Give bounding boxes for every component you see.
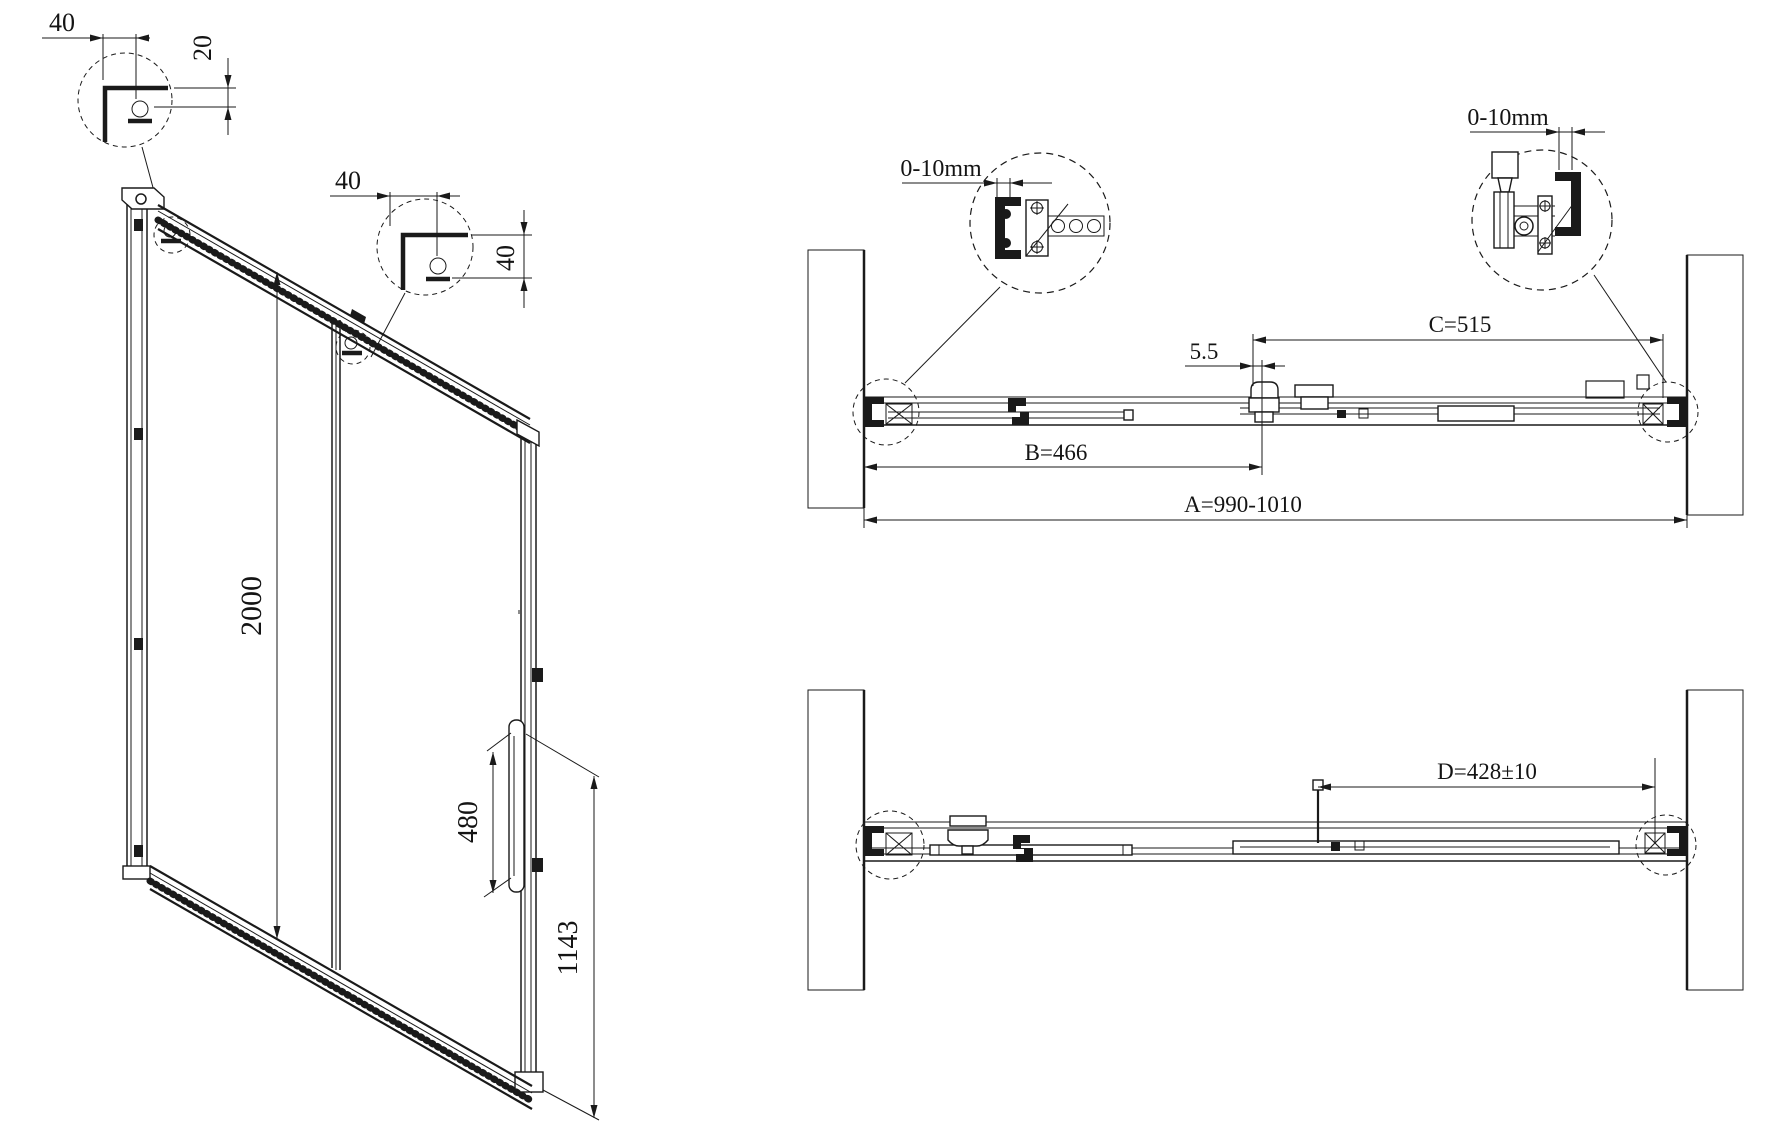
plan-view-top: 0-10mm	[808, 105, 1743, 528]
wall-profile-icon	[995, 197, 1021, 259]
dim-text-gap-left: 0-10mm	[900, 156, 982, 182]
dim-text-1143: 1143	[553, 921, 584, 976]
bottom-rail	[150, 866, 532, 1109]
top-rail	[158, 205, 530, 443]
roller-carriage-top	[1249, 382, 1279, 422]
dim-detail1-height: 20	[154, 35, 236, 135]
guide-hook-icon	[1013, 835, 1033, 862]
dim-detail2-width: 40	[330, 166, 460, 256]
dim-travel: D=428±10	[1318, 758, 1655, 843]
wall-profile-left-icon	[864, 826, 884, 856]
dim-text-40b: 40	[335, 166, 361, 195]
dim-text-40a: 40	[49, 8, 75, 37]
dim-text-c: C=515	[1429, 312, 1492, 337]
roller-stem-right	[1637, 375, 1649, 389]
middle-stile	[332, 318, 340, 970]
wheel-icon	[1515, 217, 1533, 235]
roller-stem	[1492, 152, 1518, 178]
dim-text-40c: 40	[491, 245, 520, 271]
left-wall	[808, 690, 864, 990]
dim-detail2-height: 40	[452, 210, 532, 308]
fixed-glass-bottom	[1233, 841, 1619, 854]
wall-clip-icon	[532, 858, 543, 872]
junction-circle-right	[1638, 382, 1698, 442]
door-frame	[122, 188, 543, 1109]
hole-icon	[1070, 220, 1083, 233]
track-assembly-top	[853, 375, 1698, 445]
right-wall	[1687, 255, 1743, 515]
stopper-icon	[1331, 842, 1340, 851]
isometric-view: 40 20	[42, 8, 599, 1120]
dim-text-gap-right: 0-10mm	[1467, 105, 1549, 131]
dim-wall-gap-left: 0-10mm	[900, 156, 1052, 197]
wall-bracket-left	[886, 404, 912, 424]
dim-wall-gap-right: 0-10mm	[1467, 105, 1605, 170]
dim-text-a: A=990-1010	[1184, 492, 1302, 517]
dim-handle-height: 1143	[526, 734, 599, 1120]
dim-opening-width: A=990-1010	[864, 492, 1687, 528]
detail-circle-wall-left: 0-10mm	[900, 153, 1110, 383]
dim-text-d: D=428±10	[1437, 759, 1537, 784]
dim-text-480: 480	[453, 801, 484, 843]
dim-door-height: 2000	[235, 272, 281, 939]
roller-body-right	[1586, 381, 1624, 398]
dim-text-2000: 2000	[235, 576, 268, 636]
detail-leader-line	[905, 287, 1000, 383]
detail-circle-corner-40x20: 40 20	[42, 8, 236, 206]
left-wall-profile	[122, 188, 164, 879]
wall-clip-icon	[134, 428, 143, 440]
wall-clip-icon	[134, 638, 143, 650]
wall-clip-icon	[134, 845, 143, 857]
wall-profile-right-icon	[1667, 826, 1687, 856]
wall-bracket-left	[886, 833, 912, 855]
dim-text-b: B=466	[1025, 440, 1088, 465]
track-assembly-bottom	[856, 780, 1696, 879]
dim-door-panel: B=466	[864, 440, 1262, 471]
anti-jump-bracket	[1295, 385, 1333, 409]
wall-profile-icon	[1555, 172, 1581, 236]
stopper-icon	[1337, 410, 1346, 418]
stile-bottom-cap	[515, 1072, 543, 1092]
drawing-sheet: 40 20	[0, 0, 1782, 1146]
dim-text-overlap: 5.5	[1190, 339, 1219, 364]
roller-glyph-icon	[426, 258, 450, 279]
roller-body	[1494, 192, 1514, 248]
hole-icon	[1088, 220, 1101, 233]
dim-text-20: 20	[188, 35, 217, 61]
detail-leader-line	[1594, 275, 1666, 382]
detail-circle-corner-40x40: 40 40	[330, 166, 532, 357]
wall-clip-icon	[532, 668, 543, 682]
stop-pin	[1313, 780, 1323, 843]
plan-view-bottom: D=428±10	[808, 690, 1743, 990]
wall-profile-left-icon	[864, 397, 884, 427]
wall-clip-icon	[134, 219, 143, 231]
left-wall	[808, 250, 864, 508]
roller-glyph-icon	[128, 101, 152, 121]
cad-drawing: 40 20	[0, 0, 1782, 1146]
dim-handle-length: 480	[453, 733, 511, 897]
rail-clip-icon	[350, 309, 366, 324]
wall-profile-right-icon	[1667, 397, 1687, 427]
